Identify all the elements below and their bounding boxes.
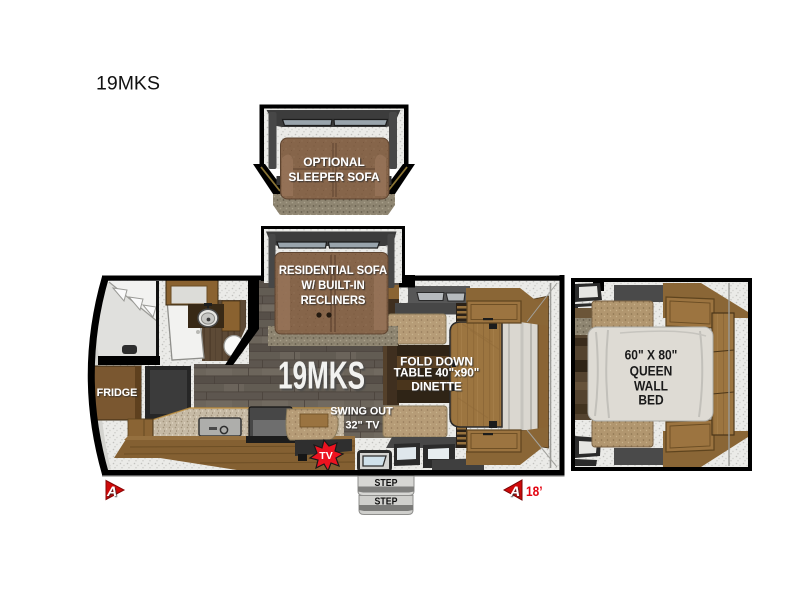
svg-text:60" X 80": 60" X 80" — [625, 347, 678, 363]
svg-text:QUEEN: QUEEN — [630, 363, 673, 379]
svg-text:SWING OUT: SWING OUT — [330, 406, 393, 418]
svg-text:18’: 18’ — [526, 483, 543, 499]
svg-text:OPTIONAL: OPTIONAL — [303, 155, 364, 169]
svg-text:FRIDGE: FRIDGE — [97, 387, 138, 399]
svg-text:A: A — [509, 483, 520, 499]
svg-text:BED: BED — [638, 392, 663, 408]
svg-text:STEP: STEP — [375, 476, 398, 488]
svg-text:A: A — [106, 483, 117, 499]
svg-text:TV: TV — [319, 450, 332, 462]
svg-text:W/ BUILT-IN: W/ BUILT-IN — [301, 279, 364, 293]
svg-text:19MKS: 19MKS — [278, 354, 365, 397]
svg-text:DINETTE: DINETTE — [411, 380, 462, 394]
svg-text:SLEEPER SOFA: SLEEPER SOFA — [288, 170, 380, 184]
svg-text:19MKS: 19MKS — [96, 73, 160, 95]
svg-text:RESIDENTIAL SOFA: RESIDENTIAL SOFA — [279, 264, 388, 278]
svg-text:32" TV: 32" TV — [346, 420, 381, 432]
svg-text:STEP: STEP — [375, 495, 398, 507]
svg-text:RECLINERS: RECLINERS — [301, 294, 366, 308]
svg-text:TABLE 40"x90": TABLE 40"x90" — [394, 366, 480, 380]
